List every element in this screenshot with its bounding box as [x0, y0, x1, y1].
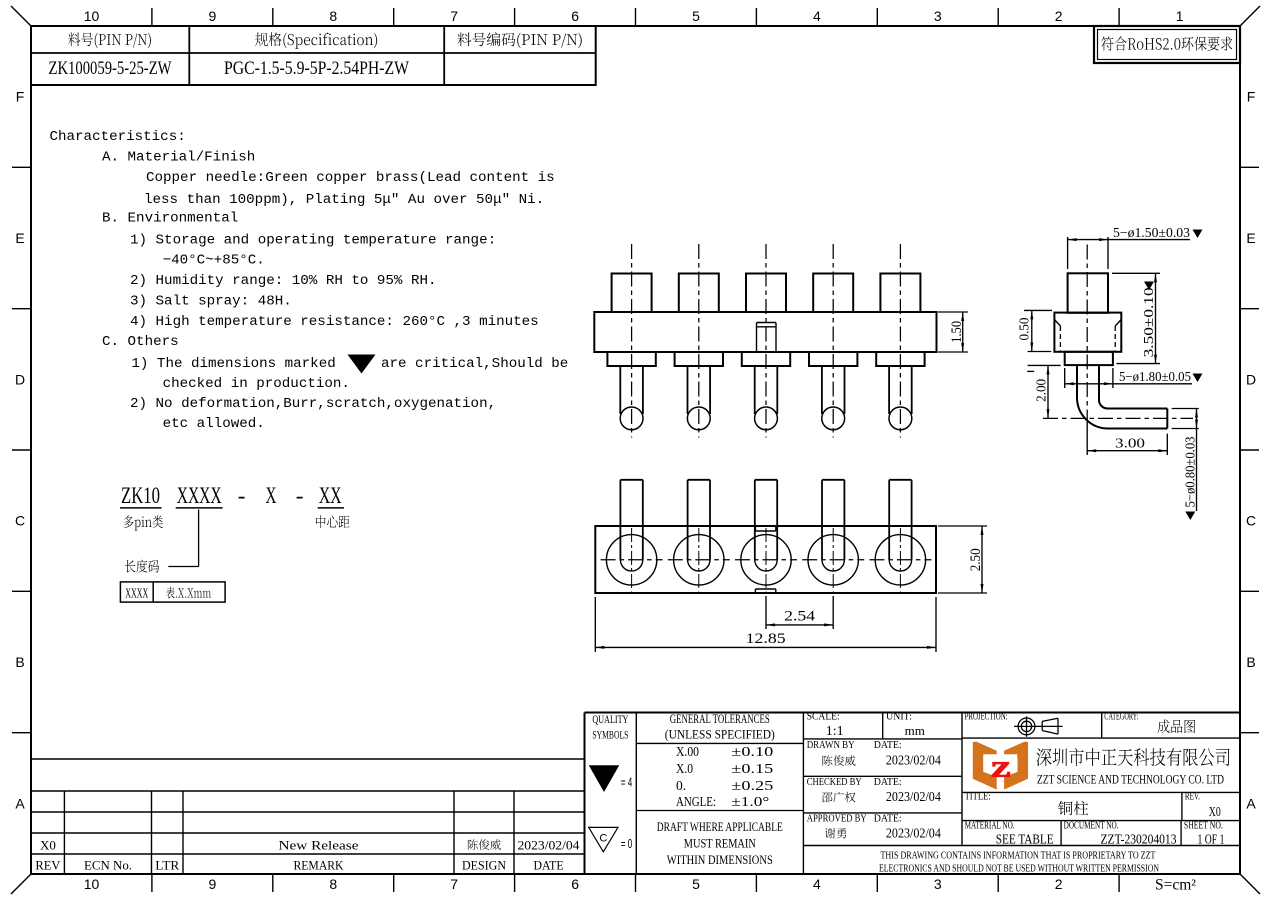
svg-text:GENERAL TOLERANCES: GENERAL TOLERANCES	[670, 712, 770, 726]
svg-text:Copper needle:Green copper bra: Copper needle:Green copper brass(Lead co…	[146, 170, 555, 186]
svg-text:ZZT SCIENCE AND TECHNOLOGY CO.: ZZT SCIENCE AND TECHNOLOGY CO. LTD	[1037, 773, 1224, 787]
svg-text:XXXX: XXXX	[177, 483, 222, 508]
svg-text:etc allowed.: etc allowed.	[163, 416, 265, 432]
svg-text:DATE: DATE	[534, 858, 564, 873]
svg-text:X: X	[266, 483, 277, 508]
svg-text:2023/02/04: 2023/02/04	[886, 789, 941, 804]
svg-text:SCALE:: SCALE:	[807, 712, 840, 723]
svg-text:±0.15: ±0.15	[731, 761, 773, 776]
svg-text:TITLE:: TITLE:	[965, 792, 991, 803]
svg-text:New Release: New Release	[279, 838, 359, 853]
svg-text:3) Salt spray: 48H.: 3) Salt spray: 48H.	[130, 294, 292, 310]
svg-text:ANGLE:: ANGLE:	[676, 794, 716, 809]
svg-text:5−ø0.80±0.03: 5−ø0.80±0.03	[1183, 437, 1198, 508]
svg-text:DATE:: DATE:	[874, 740, 902, 751]
svg-text:SYMBOLS: SYMBOLS	[592, 728, 628, 742]
svg-text:C: C	[1246, 513, 1256, 529]
svg-text:2023/02/04: 2023/02/04	[518, 838, 581, 853]
svg-text:9: 9	[209, 8, 217, 24]
svg-text:2: 2	[1055, 876, 1063, 892]
svg-text:CATEGORY:: CATEGORY:	[1104, 712, 1138, 723]
svg-text:QUALITY: QUALITY	[592, 712, 628, 726]
svg-text:REV.: REV.	[1185, 792, 1200, 803]
svg-text:A: A	[1246, 795, 1256, 811]
svg-text:F: F	[16, 89, 25, 105]
svg-text:2.00: 2.00	[1034, 379, 1049, 402]
svg-text:C. Others: C. Others	[102, 334, 179, 350]
svg-text:6: 6	[571, 8, 579, 24]
svg-text:DATE:: DATE:	[874, 777, 902, 788]
svg-text:D: D	[1246, 371, 1256, 387]
svg-text:12.85: 12.85	[746, 631, 786, 647]
svg-text:2023/02/04: 2023/02/04	[886, 826, 941, 841]
svg-text:SEE TABLE: SEE TABLE	[996, 832, 1054, 847]
svg-text:ECN No.: ECN No.	[84, 858, 132, 873]
svg-text:F: F	[1247, 89, 1256, 105]
svg-text:4: 4	[813, 8, 821, 24]
svg-text:REMARK: REMARK	[294, 858, 345, 873]
svg-text:9: 9	[209, 876, 217, 892]
svg-text:1) Storage and operating tempe: 1) Storage and operating temperature ran…	[130, 233, 496, 249]
svg-text:ZK10: ZK10	[121, 483, 160, 508]
svg-text:THIS DRAWING CONTAINS INFORMAT: THIS DRAWING CONTAINS INFORMATION THAT I…	[881, 851, 1156, 862]
svg-text:2: 2	[1055, 8, 1063, 24]
svg-text:DATE:: DATE:	[874, 814, 902, 825]
svg-text:7: 7	[450, 876, 458, 892]
svg-text:0.: 0.	[676, 778, 686, 793]
svg-text:Z: Z	[991, 758, 1011, 782]
svg-text:8: 8	[329, 8, 337, 24]
svg-text:8: 8	[329, 876, 337, 892]
svg-text:±0.10: ±0.10	[731, 744, 773, 759]
svg-text:2) No deformation,Burr,scratch: 2) No deformation,Burr,scratch,oxygenati…	[130, 396, 496, 412]
svg-text:ELECTRONICS AND SHOULD NOT BE: ELECTRONICS AND SHOULD NOT BE USED WITHO…	[879, 863, 1159, 874]
svg-text:S=cm²: S=cm²	[1155, 877, 1196, 894]
svg-text:MUST REMAIN: MUST REMAIN	[684, 837, 756, 851]
svg-text:= 4: = 4	[621, 775, 633, 790]
svg-text:2.54: 2.54	[784, 609, 816, 625]
svg-text:5−ø1.80±0.05: 5−ø1.80±0.05	[1119, 370, 1191, 385]
svg-text:X.00: X.00	[676, 744, 699, 759]
svg-text:PROJECTION:: PROJECTION:	[965, 712, 1008, 723]
svg-text:4) High temperature resistance: 4) High temperature resistance: 260°C ,3…	[130, 314, 539, 330]
svg-text:APPROVED BY: APPROVED BY	[807, 814, 867, 825]
svg-text:2) Humidity range: 10% RH to 9: 2) Humidity range: 10% RH to 95% RH.	[130, 273, 437, 289]
svg-text:XX: XX	[319, 483, 342, 508]
svg-text:10: 10	[84, 8, 100, 24]
svg-text:DRAFT WHERE APPLICABLE: DRAFT WHERE APPLICABLE	[657, 820, 783, 834]
svg-text:2023/02/04: 2023/02/04	[886, 753, 941, 768]
svg-text:1.50: 1.50	[949, 321, 965, 343]
svg-text:checked in production.: checked in production.	[163, 376, 350, 392]
svg-text:SHEET NO.: SHEET NO.	[1184, 821, 1223, 832]
svg-text:4: 4	[813, 876, 821, 892]
svg-text:REV: REV	[35, 858, 61, 873]
svg-text:7: 7	[450, 8, 458, 24]
svg-text:1 OF 1: 1 OF 1	[1198, 832, 1225, 847]
svg-text:D: D	[15, 371, 25, 387]
svg-text:are critical,Should be: are critical,Should be	[381, 356, 568, 372]
svg-text:X0: X0	[40, 838, 56, 853]
svg-text:B: B	[1246, 654, 1255, 670]
svg-text:LTR: LTR	[155, 858, 179, 873]
svg-text:E: E	[15, 230, 24, 246]
svg-text:XXXX: XXXX	[125, 586, 148, 601]
svg-text:MATERIAL NO.: MATERIAL NO.	[965, 821, 1015, 832]
svg-text:1:1: 1:1	[826, 724, 844, 739]
svg-text:(UNLESS SPECIFIED): (UNLESS SPECIFIED)	[665, 728, 775, 742]
svg-text:3: 3	[934, 8, 942, 24]
svg-text:1) The dimensions marked: 1) The dimensions marked	[131, 356, 335, 372]
svg-text:X.0: X.0	[676, 761, 693, 776]
svg-text:X0: X0	[1209, 804, 1221, 819]
svg-text:5−ø1.50±0.03: 5−ø1.50±0.03	[1113, 226, 1190, 241]
svg-text:WITHIN DIMENSIONS: WITHIN DIMENSIONS	[667, 853, 773, 867]
svg-text:5: 5	[692, 8, 700, 24]
svg-text:C: C	[15, 513, 25, 529]
svg-text:C: C	[599, 833, 607, 845]
svg-text:A. Material/Finish: A. Material/Finish	[102, 150, 255, 166]
svg-text:ZZT-230204013: ZZT-230204013	[1101, 832, 1177, 847]
svg-text:Characteristics:: Characteristics:	[50, 129, 186, 145]
svg-text:-: -	[296, 483, 304, 508]
svg-text:DESIGN: DESIGN	[462, 858, 507, 873]
svg-text:−40°C~+85°C.: −40°C~+85°C.	[163, 253, 265, 269]
svg-text:1: 1	[1176, 8, 1184, 24]
svg-text:10: 10	[84, 876, 100, 892]
svg-text:2.50: 2.50	[968, 548, 984, 571]
svg-text:DRAWN BY: DRAWN BY	[807, 740, 855, 751]
svg-text:less than 100ppm), Plating 5μ″: less than 100ppm), Plating 5μ″ Au over 5…	[144, 192, 544, 208]
svg-text:DOCUMENT NO.: DOCUMENT NO.	[1064, 821, 1119, 832]
svg-text:A: A	[15, 795, 25, 811]
svg-text:3.00: 3.00	[1115, 436, 1145, 451]
svg-text:3: 3	[934, 876, 942, 892]
svg-text:mm: mm	[905, 723, 925, 738]
svg-text:0.50: 0.50	[1017, 318, 1032, 341]
svg-text:6: 6	[571, 876, 579, 892]
svg-text:PGC-1.5-5.9-5P-2.54PH-ZW: PGC-1.5-5.9-5P-2.54PH-ZW	[224, 58, 409, 79]
svg-text:= 0: = 0	[621, 836, 633, 851]
svg-text:5: 5	[692, 876, 700, 892]
svg-text:E: E	[1246, 230, 1255, 246]
svg-text:B. Environmental: B. Environmental	[102, 211, 238, 227]
svg-text:±1.0°: ±1.0°	[731, 794, 769, 809]
svg-text:CHECKED BY: CHECKED BY	[807, 777, 862, 788]
svg-text:B: B	[15, 654, 24, 670]
svg-text:±0.25: ±0.25	[731, 778, 773, 793]
svg-text:UNIT:: UNIT:	[886, 712, 912, 723]
svg-text:3.50±0.10: 3.50±0.10	[1142, 287, 1157, 357]
svg-text:-: -	[238, 483, 246, 508]
svg-text:ZK100059-5-25-ZW: ZK100059-5-25-ZW	[49, 58, 172, 79]
